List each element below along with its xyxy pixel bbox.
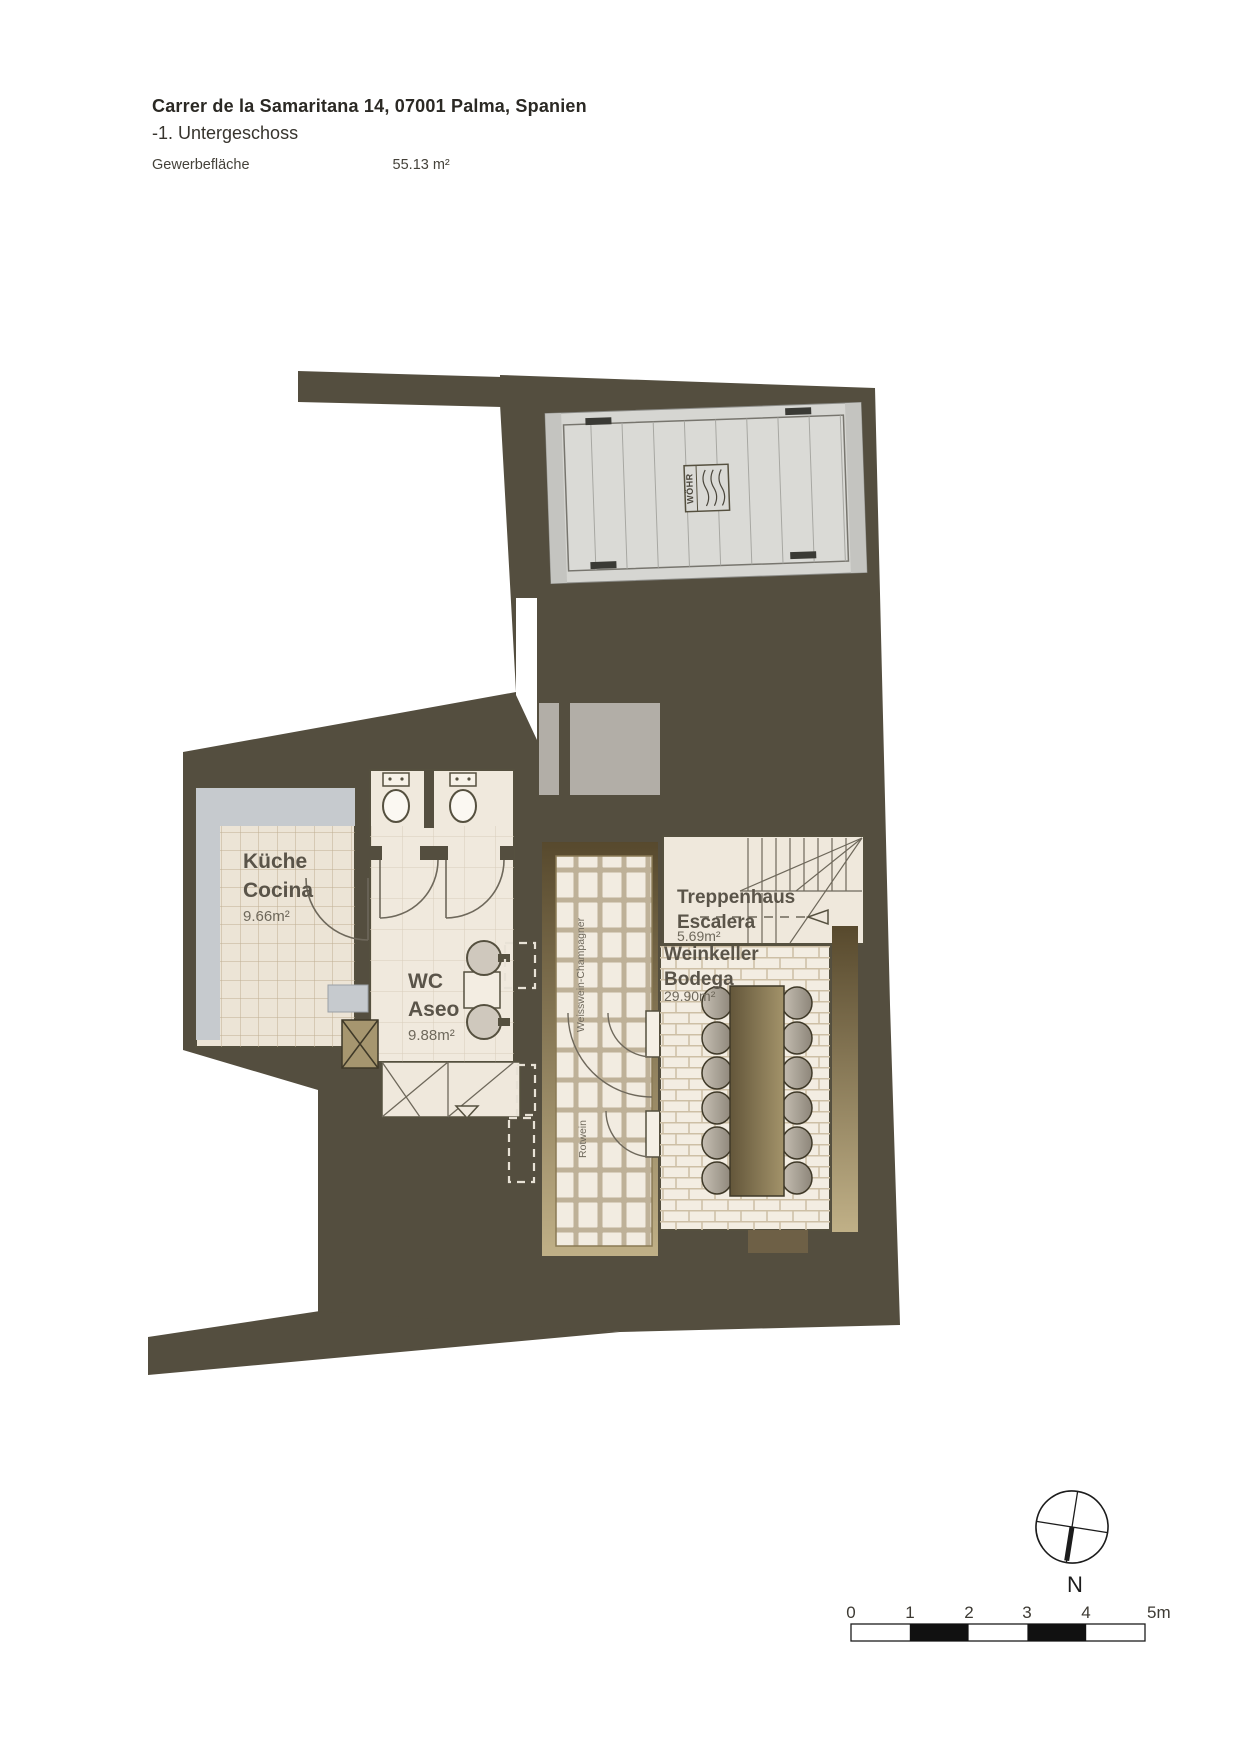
gray-block-large [570, 703, 660, 795]
gray-block-small [539, 703, 559, 795]
kitchen-counter-low [328, 985, 368, 1012]
car-lift-platform: WÖHR [545, 403, 867, 584]
scale-bar: 0 1 2 3 4 5m [846, 1603, 1170, 1641]
wall-spur [298, 371, 502, 407]
wc-area: 9.88m² [408, 1027, 455, 1044]
cellar-name-es: Bodega [664, 969, 734, 990]
scale-tick-2: 2 [964, 1603, 973, 1622]
woehr-logo: WÖHR [684, 464, 730, 512]
tasting-table [730, 986, 784, 1196]
scale-tick-4: 4 [1081, 1603, 1090, 1622]
floorplan-drawing: WÖHR Küche Cocina 9.66m² [0, 0, 1241, 1754]
floorplan-page: Carrer de la Samaritana 14, 07001 Palma,… [0, 0, 1241, 1754]
toilet-2 [450, 773, 476, 822]
room-wc: WC Aseo 9.88m² [368, 770, 514, 1062]
compass-rose: N [1031, 1486, 1113, 1597]
stairs-area: 5.69m² [677, 928, 721, 944]
rack-label-whitewine: Weisswein-Champagner [575, 917, 587, 1032]
lower-stairs [382, 1062, 520, 1118]
cellar-name-de: Weinkeller [664, 944, 759, 965]
rack-label-redwine: Rotwein [577, 1120, 589, 1158]
cellar-bottom-step [748, 1230, 808, 1253]
scale-tick-5m: 5m [1147, 1603, 1171, 1622]
wine-rack-corridor: Weisswein-Champagner Rotwein [542, 842, 662, 1256]
wc-name-de: WC [408, 970, 443, 993]
woehr-brand-text: WÖHR [684, 473, 695, 504]
toilet-1 [383, 773, 409, 822]
room-kitchen: Küche Cocina 9.66m² [196, 788, 368, 1047]
wc-partition-wall [424, 770, 434, 828]
compass-north-label: N [1067, 1572, 1083, 1597]
kitchen-area: 9.66m² [243, 908, 290, 925]
room-wine-cellar: Weinkeller Bodega 29.90m² [660, 926, 858, 1253]
scale-tick-0: 0 [846, 1603, 855, 1622]
kitchen-name-es: Cocina [243, 879, 313, 902]
stairs-name-de: Treppenhaus [677, 887, 795, 908]
kitchen-counter-top [196, 788, 355, 826]
scale-tick-1: 1 [905, 1603, 914, 1622]
cellar-right-pillar [832, 926, 858, 1232]
scale-tick-3: 3 [1022, 1603, 1031, 1622]
kitchen-name-de: Küche [243, 850, 307, 873]
compass-needle [1067, 1527, 1072, 1561]
kitchen-counter-left [196, 826, 220, 1040]
wc-name-es: Aseo [408, 998, 459, 1021]
shaft-box [342, 1020, 378, 1068]
cellar-area: 29.90m² [664, 988, 716, 1004]
